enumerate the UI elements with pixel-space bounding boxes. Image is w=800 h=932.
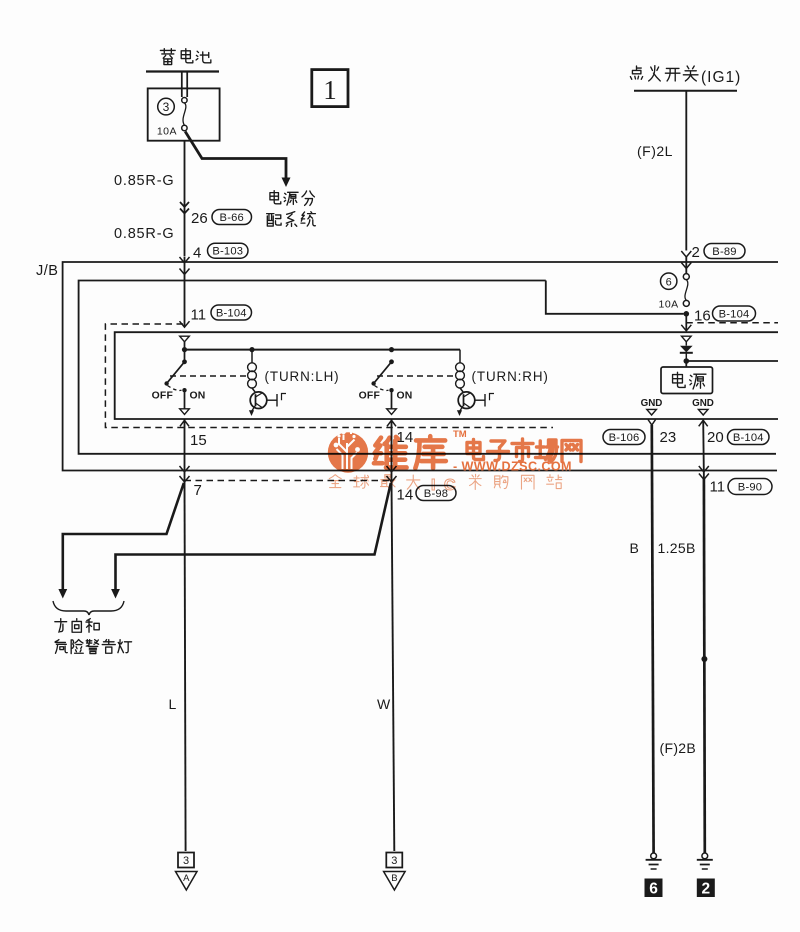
- svg-text:1.25B: 1.25B: [658, 540, 696, 556]
- svg-text:B-66: B-66: [220, 212, 244, 224]
- svg-text:11: 11: [191, 307, 207, 324]
- svg-text:16: 16: [694, 308, 711, 325]
- svg-text:(TURN:RH): (TURN:RH): [472, 369, 549, 384]
- svg-text:B-106: B-106: [609, 432, 640, 444]
- svg-text:14: 14: [397, 487, 414, 504]
- svg-text:26: 26: [191, 210, 208, 227]
- svg-text:10A: 10A: [659, 299, 679, 311]
- svg-text:0.85R-G: 0.85R-G: [114, 226, 174, 242]
- svg-text:B: B: [391, 873, 397, 884]
- svg-text:(IG1): (IG1): [701, 69, 741, 86]
- svg-text:6: 6: [666, 277, 672, 289]
- svg-text:11: 11: [710, 479, 726, 496]
- svg-text:1: 1: [323, 75, 337, 105]
- svg-text:GND: GND: [692, 398, 714, 409]
- svg-text:B-90: B-90: [738, 482, 762, 494]
- svg-text:- WWW.DZSC.COM: - WWW.DZSC.COM: [453, 460, 572, 474]
- svg-text:6: 6: [649, 881, 658, 898]
- svg-text:(F)2B: (F)2B: [660, 740, 697, 756]
- svg-text:B-104: B-104: [719, 309, 750, 321]
- svg-text:I: I: [431, 477, 435, 494]
- svg-text:23: 23: [660, 429, 677, 446]
- svg-text:7: 7: [194, 482, 202, 499]
- svg-text:3: 3: [391, 855, 397, 867]
- svg-text:20: 20: [707, 429, 724, 446]
- svg-text:B-89: B-89: [712, 246, 736, 258]
- svg-text:2: 2: [701, 881, 710, 898]
- svg-text:GND: GND: [641, 398, 663, 409]
- svg-text:3: 3: [163, 100, 170, 114]
- svg-text:C: C: [444, 477, 456, 494]
- svg-text:L: L: [169, 696, 177, 712]
- svg-text:ON: ON: [397, 391, 413, 402]
- svg-text:2: 2: [692, 244, 700, 261]
- svg-text:OFF: OFF: [152, 391, 173, 402]
- svg-text:ON: ON: [190, 391, 206, 402]
- svg-text:3: 3: [183, 855, 189, 867]
- svg-text:4: 4: [193, 245, 201, 262]
- svg-text:B-104: B-104: [216, 308, 247, 320]
- svg-text:J/B: J/B: [36, 263, 58, 279]
- svg-text:OFF: OFF: [359, 391, 380, 402]
- svg-text:15: 15: [190, 432, 207, 449]
- svg-text:0.85R-G: 0.85R-G: [114, 173, 174, 189]
- svg-text:TM: TM: [453, 429, 467, 440]
- svg-text:B: B: [630, 540, 639, 556]
- svg-text:W: W: [377, 696, 391, 712]
- svg-text:B-104: B-104: [733, 432, 764, 444]
- svg-text:A: A: [183, 873, 190, 884]
- svg-text:B-103: B-103: [212, 246, 243, 258]
- svg-text:(TURN:LH): (TURN:LH): [265, 369, 340, 384]
- svg-text:(F)2L: (F)2L: [637, 143, 673, 159]
- svg-text:10A: 10A: [157, 126, 177, 138]
